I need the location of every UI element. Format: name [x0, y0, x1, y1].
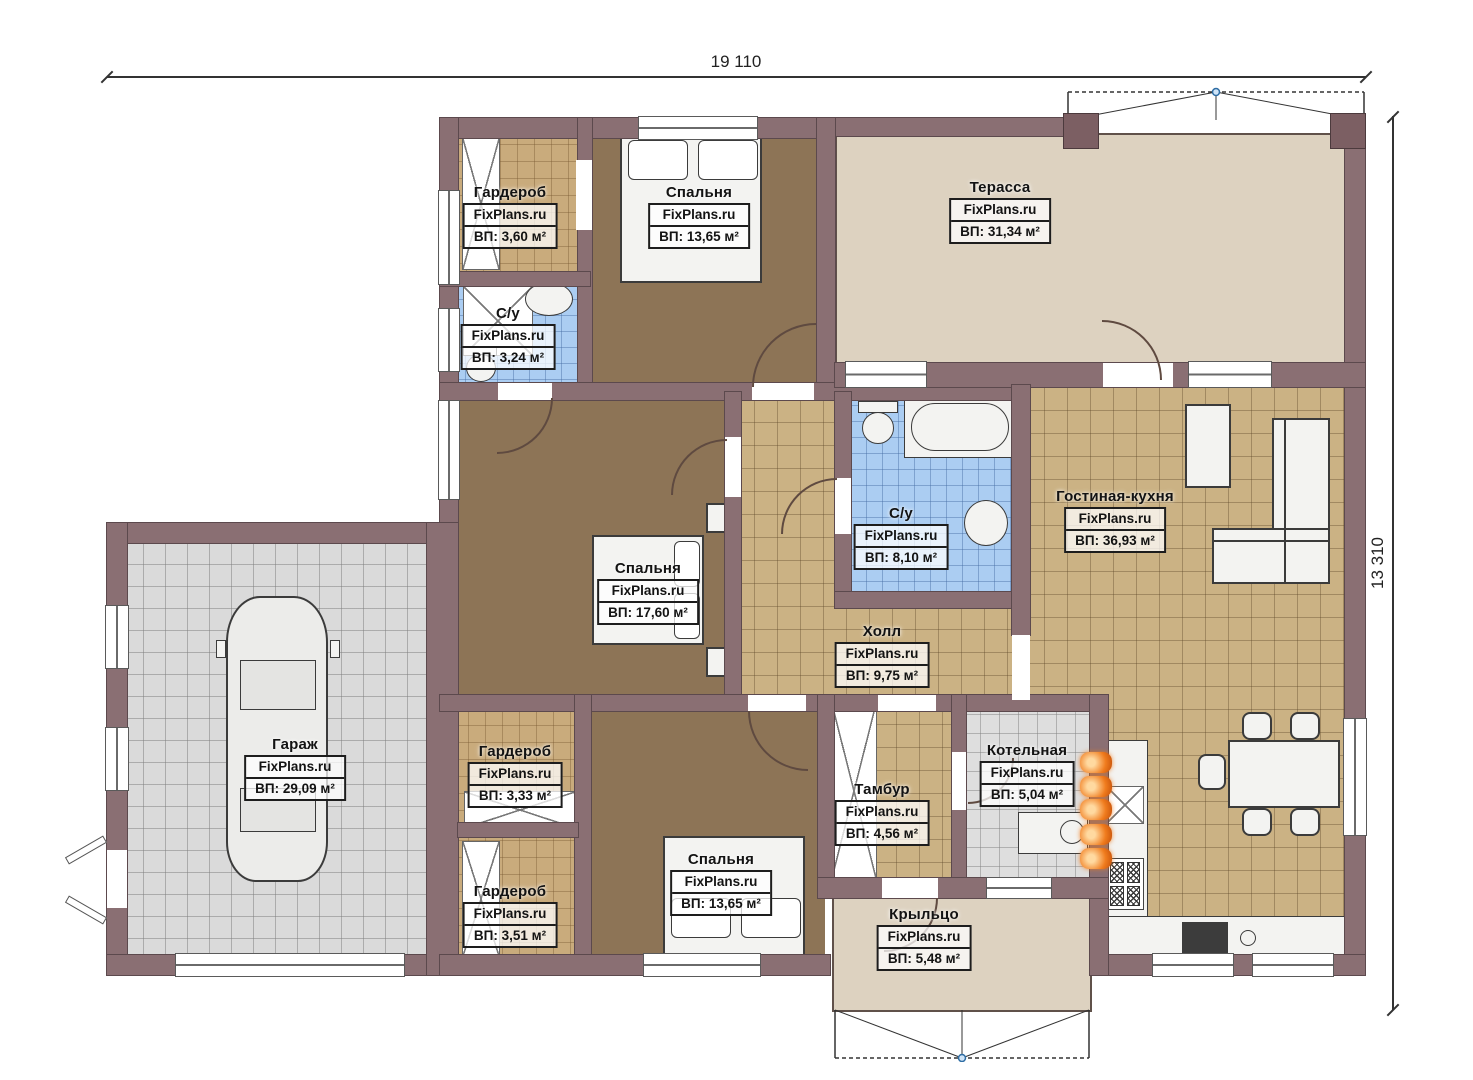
room-area: ВП: 36,93 м² [1066, 531, 1164, 551]
radiator [1080, 848, 1112, 869]
door-leaf [65, 836, 107, 865]
wall [1345, 118, 1365, 975]
window [438, 400, 460, 500]
room-name: Терасса [949, 179, 1051, 196]
room-area: ВП: 3,24 м² [463, 348, 554, 368]
burner [1127, 862, 1141, 883]
chair [1242, 712, 1272, 740]
door-opening [835, 478, 851, 534]
wall [835, 118, 1082, 136]
window [845, 361, 927, 388]
dimension-label-height: 13 310 [1368, 537, 1388, 589]
door-leaf [65, 896, 107, 925]
room-area: ВП: 9,75 м² [837, 666, 928, 686]
room-label-bedroom-top: Спальня FixPlans.ru ВП: 13,65 м² [648, 184, 750, 249]
terrace-awning [1066, 86, 1366, 122]
room-area: ВП: 3,60 м² [465, 227, 556, 247]
pillow [628, 140, 688, 180]
wall [1012, 385, 1030, 635]
entrance-door-opening [882, 878, 938, 898]
watermark: FixPlans.ru [246, 757, 344, 779]
car-mirror [330, 640, 340, 658]
room-name: С/у [854, 505, 949, 522]
wall [427, 523, 458, 975]
watermark: FixPlans.ru [463, 326, 554, 348]
wall [440, 272, 590, 286]
sink [964, 500, 1008, 546]
dimension-line-top [107, 76, 1366, 78]
room-area: ВП: 5,48 м² [879, 949, 970, 969]
toilet [862, 412, 894, 444]
wall [107, 523, 447, 543]
car-windshield [240, 660, 316, 710]
radiator [1080, 776, 1112, 797]
room-area: ВП: 8,10 м² [856, 548, 947, 568]
sink-basin [1240, 930, 1256, 946]
room-name: Гардероб [463, 184, 558, 201]
room-label-wardrobe-tl: Гардероб FixPlans.ru ВП: 3,60 м² [463, 184, 558, 249]
watermark: FixPlans.ru [465, 205, 556, 227]
bathtub-basin [911, 403, 1009, 451]
room-name: С/у [461, 305, 556, 322]
watermark: FixPlans.ru [879, 927, 970, 949]
room-label-living-kitchen: Гостиная-кухня FixPlans.ru ВП: 36,93 м² [1056, 488, 1174, 553]
dimension-line-right [1392, 116, 1394, 1010]
room-name: Спальня [648, 184, 750, 201]
watermark: FixPlans.ru [465, 904, 556, 926]
room-name: Холл [835, 623, 930, 640]
watermark: FixPlans.ru [982, 763, 1073, 785]
garage-gate [175, 953, 405, 977]
room-label-wardrobe-mid: Гардероб FixPlans.ru ВП: 3,33 м² [468, 743, 563, 808]
chair [1242, 808, 1272, 836]
room-label-bath-small: С/у FixPlans.ru ВП: 3,24 м² [461, 305, 556, 370]
burner [1110, 886, 1124, 907]
radiator [1080, 752, 1112, 773]
terrace-column [1064, 114, 1098, 148]
door-opening [725, 437, 741, 497]
sofa-cushion-line [1214, 540, 1328, 542]
room-label-garage: Гараж FixPlans.ru ВП: 29,09 м² [244, 736, 346, 801]
room-label-bedroom-bottom: Спальня FixPlans.ru ВП: 13,65 м² [670, 851, 772, 916]
room-area: ВП: 5,04 м² [982, 785, 1073, 805]
window [105, 727, 129, 791]
window [638, 116, 758, 140]
room-name: Тамбур [835, 781, 930, 798]
window [643, 953, 761, 977]
room-label-porch: Крыльцо FixPlans.ru ВП: 5,48 м² [877, 906, 972, 971]
room-area: ВП: 13,65 м² [672, 894, 770, 914]
porch-awning [833, 1008, 1091, 1062]
door-opening [952, 752, 966, 810]
burner [1110, 862, 1124, 883]
burner [1127, 886, 1141, 907]
chair [1290, 808, 1320, 836]
room-name: Крыльцо [877, 906, 972, 923]
window [438, 308, 460, 372]
door-opening [1012, 635, 1030, 700]
pillow [698, 140, 758, 180]
wall [440, 955, 830, 975]
room-area: ВП: 29,09 м² [246, 779, 344, 799]
room-label-wardrobe-bot: Гардероб FixPlans.ru ВП: 3,51 м² [463, 883, 558, 948]
chair [1290, 712, 1320, 740]
watermark: FixPlans.ru [650, 205, 748, 227]
wall [817, 118, 835, 400]
window [1252, 953, 1334, 977]
door-opening [748, 695, 806, 711]
window [1343, 718, 1367, 836]
room-area: ВП: 3,33 м² [470, 786, 561, 806]
room-name: Гардероб [463, 883, 558, 900]
watermark: FixPlans.ru [599, 581, 697, 603]
room-label-tambour: Тамбур FixPlans.ru ВП: 4,56 м² [835, 781, 930, 846]
wall [818, 878, 1108, 898]
radiator [1080, 799, 1112, 820]
door-opening [878, 695, 936, 711]
window [105, 605, 129, 669]
room-label-hall: Холл FixPlans.ru ВП: 9,75 м² [835, 623, 930, 688]
room-label-bath-main: С/у FixPlans.ru ВП: 8,10 м² [854, 505, 949, 570]
window [1152, 953, 1234, 977]
floor-plan: Гардероб FixPlans.ru ВП: 3,60 м² Спальня… [0, 0, 1473, 1080]
watermark: FixPlans.ru [672, 872, 770, 894]
watermark: FixPlans.ru [837, 802, 928, 824]
room-label-terrace: Терасса FixPlans.ru ВП: 31,34 м² [949, 179, 1051, 244]
room-label-bedroom-mid: Спальня FixPlans.ru ВП: 17,60 м² [597, 560, 699, 625]
terrace-column [1331, 114, 1365, 148]
room-name: Гараж [244, 736, 346, 753]
room-name: Гардероб [468, 743, 563, 760]
room-name: Спальня [670, 851, 772, 868]
sofa-cushion-line [1284, 420, 1286, 582]
room-area: ВП: 17,60 м² [599, 603, 697, 623]
room-area: ВП: 3,51 м² [465, 926, 556, 946]
radiator [1080, 824, 1112, 845]
dimension-label-width: 19 110 [711, 52, 762, 72]
wall [458, 823, 578, 837]
room-area: ВП: 31,34 м² [951, 222, 1049, 242]
window [986, 877, 1052, 899]
watermark: FixPlans.ru [470, 764, 561, 786]
sofa-horizontal [1212, 528, 1330, 584]
watermark: FixPlans.ru [951, 200, 1049, 222]
room-name: Гостиная-кухня [1056, 488, 1174, 505]
room-area: ВП: 13,65 м² [650, 227, 748, 247]
room-name: Котельная [980, 742, 1075, 759]
room-label-boiler: Котельная FixPlans.ru ВП: 5,04 м² [980, 742, 1075, 807]
car-mirror [216, 640, 226, 658]
window [1188, 361, 1272, 388]
window [438, 190, 460, 285]
room-name: Спальня [597, 560, 699, 577]
room-area: ВП: 4,56 м² [837, 824, 928, 844]
wall [835, 592, 1030, 608]
chair [1198, 754, 1226, 790]
door-opening [576, 160, 592, 230]
wall [818, 695, 834, 898]
watermark: FixPlans.ru [856, 526, 947, 548]
tv-cabinet [1185, 404, 1231, 488]
stove [1106, 858, 1144, 910]
watermark: FixPlans.ru [1066, 509, 1164, 531]
dining-table [1228, 740, 1340, 808]
floor-terrace [835, 133, 1350, 365]
kitchen-appliance [1182, 922, 1228, 954]
garage-side-door-opening [107, 850, 127, 908]
watermark: FixPlans.ru [837, 644, 928, 666]
